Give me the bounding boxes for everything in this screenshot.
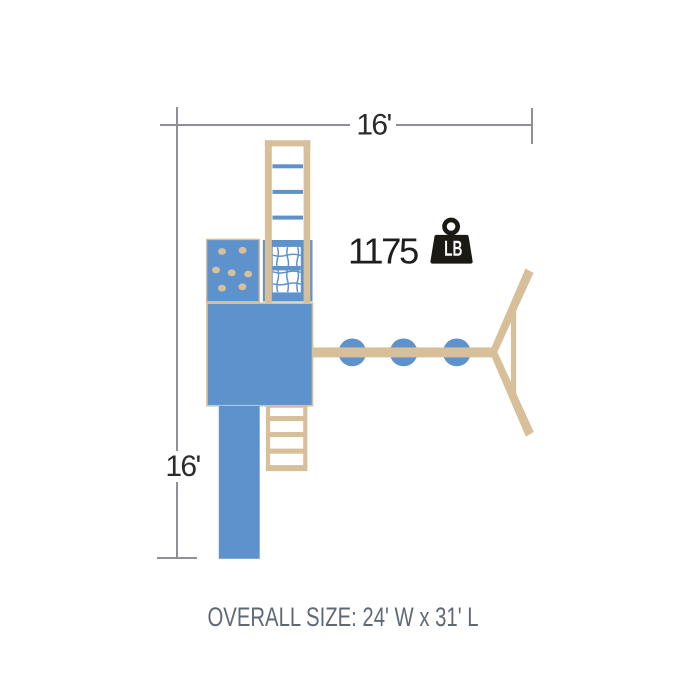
svg-text:16': 16': [165, 450, 200, 483]
svg-text:16': 16': [356, 109, 391, 142]
svg-text:OVERALL SIZE: 24' W x 31' L: OVERALL SIZE: 24' W x 31' L: [208, 602, 479, 632]
svg-text:1175: 1175: [348, 231, 418, 272]
